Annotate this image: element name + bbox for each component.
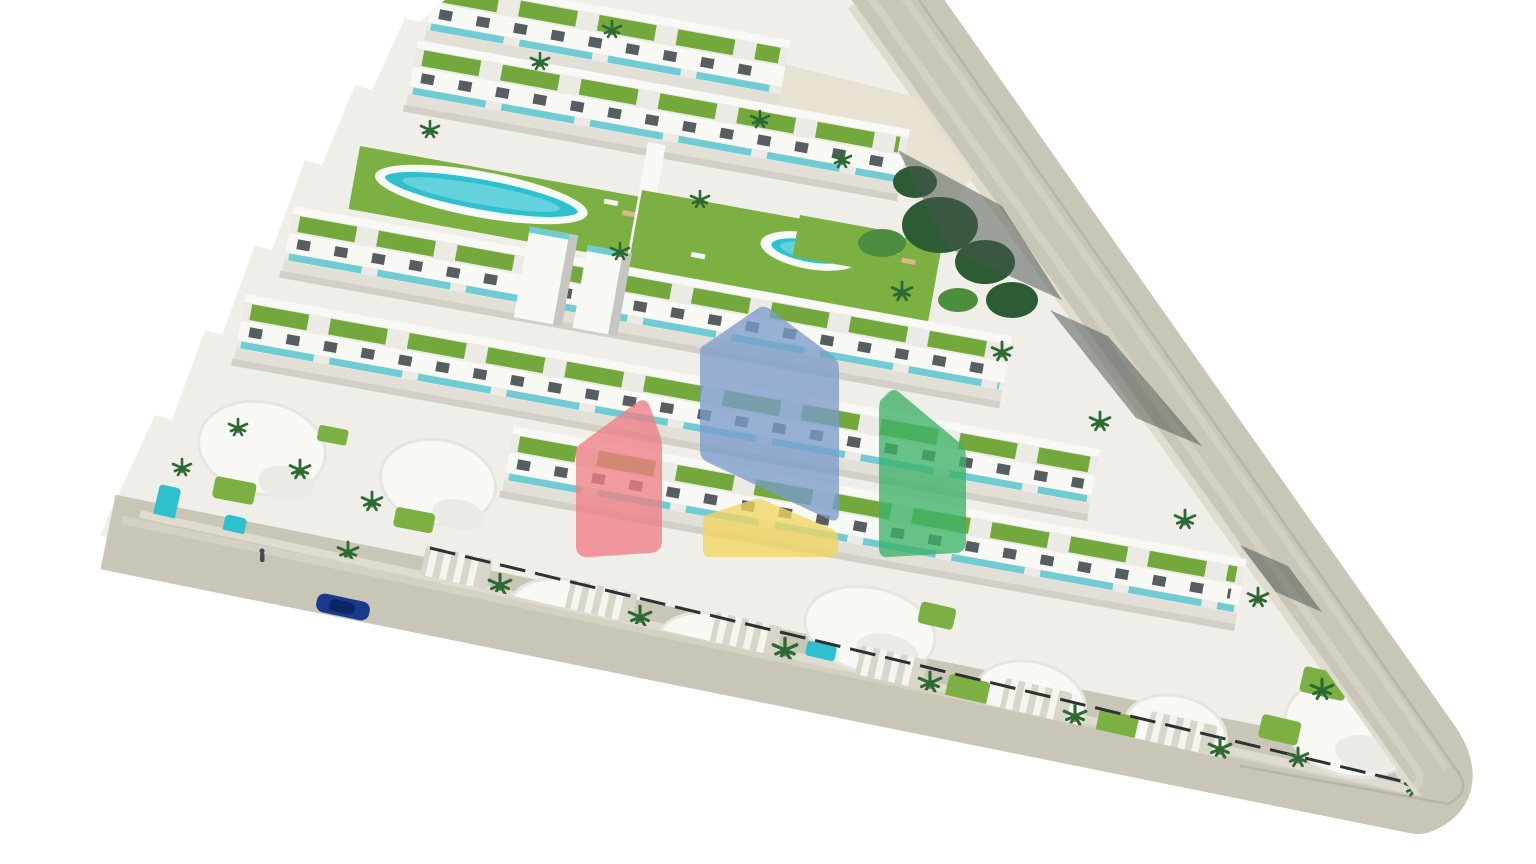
pedestrian-body [260, 553, 265, 562]
aerial-render-image [0, 0, 1536, 864]
pedestrian [259, 548, 264, 562]
dark-trees [986, 282, 1038, 318]
mid-trees [858, 229, 906, 257]
mid-trees [938, 288, 978, 312]
pedestrian-head [259, 548, 264, 553]
development-render-svg [0, 0, 1536, 864]
